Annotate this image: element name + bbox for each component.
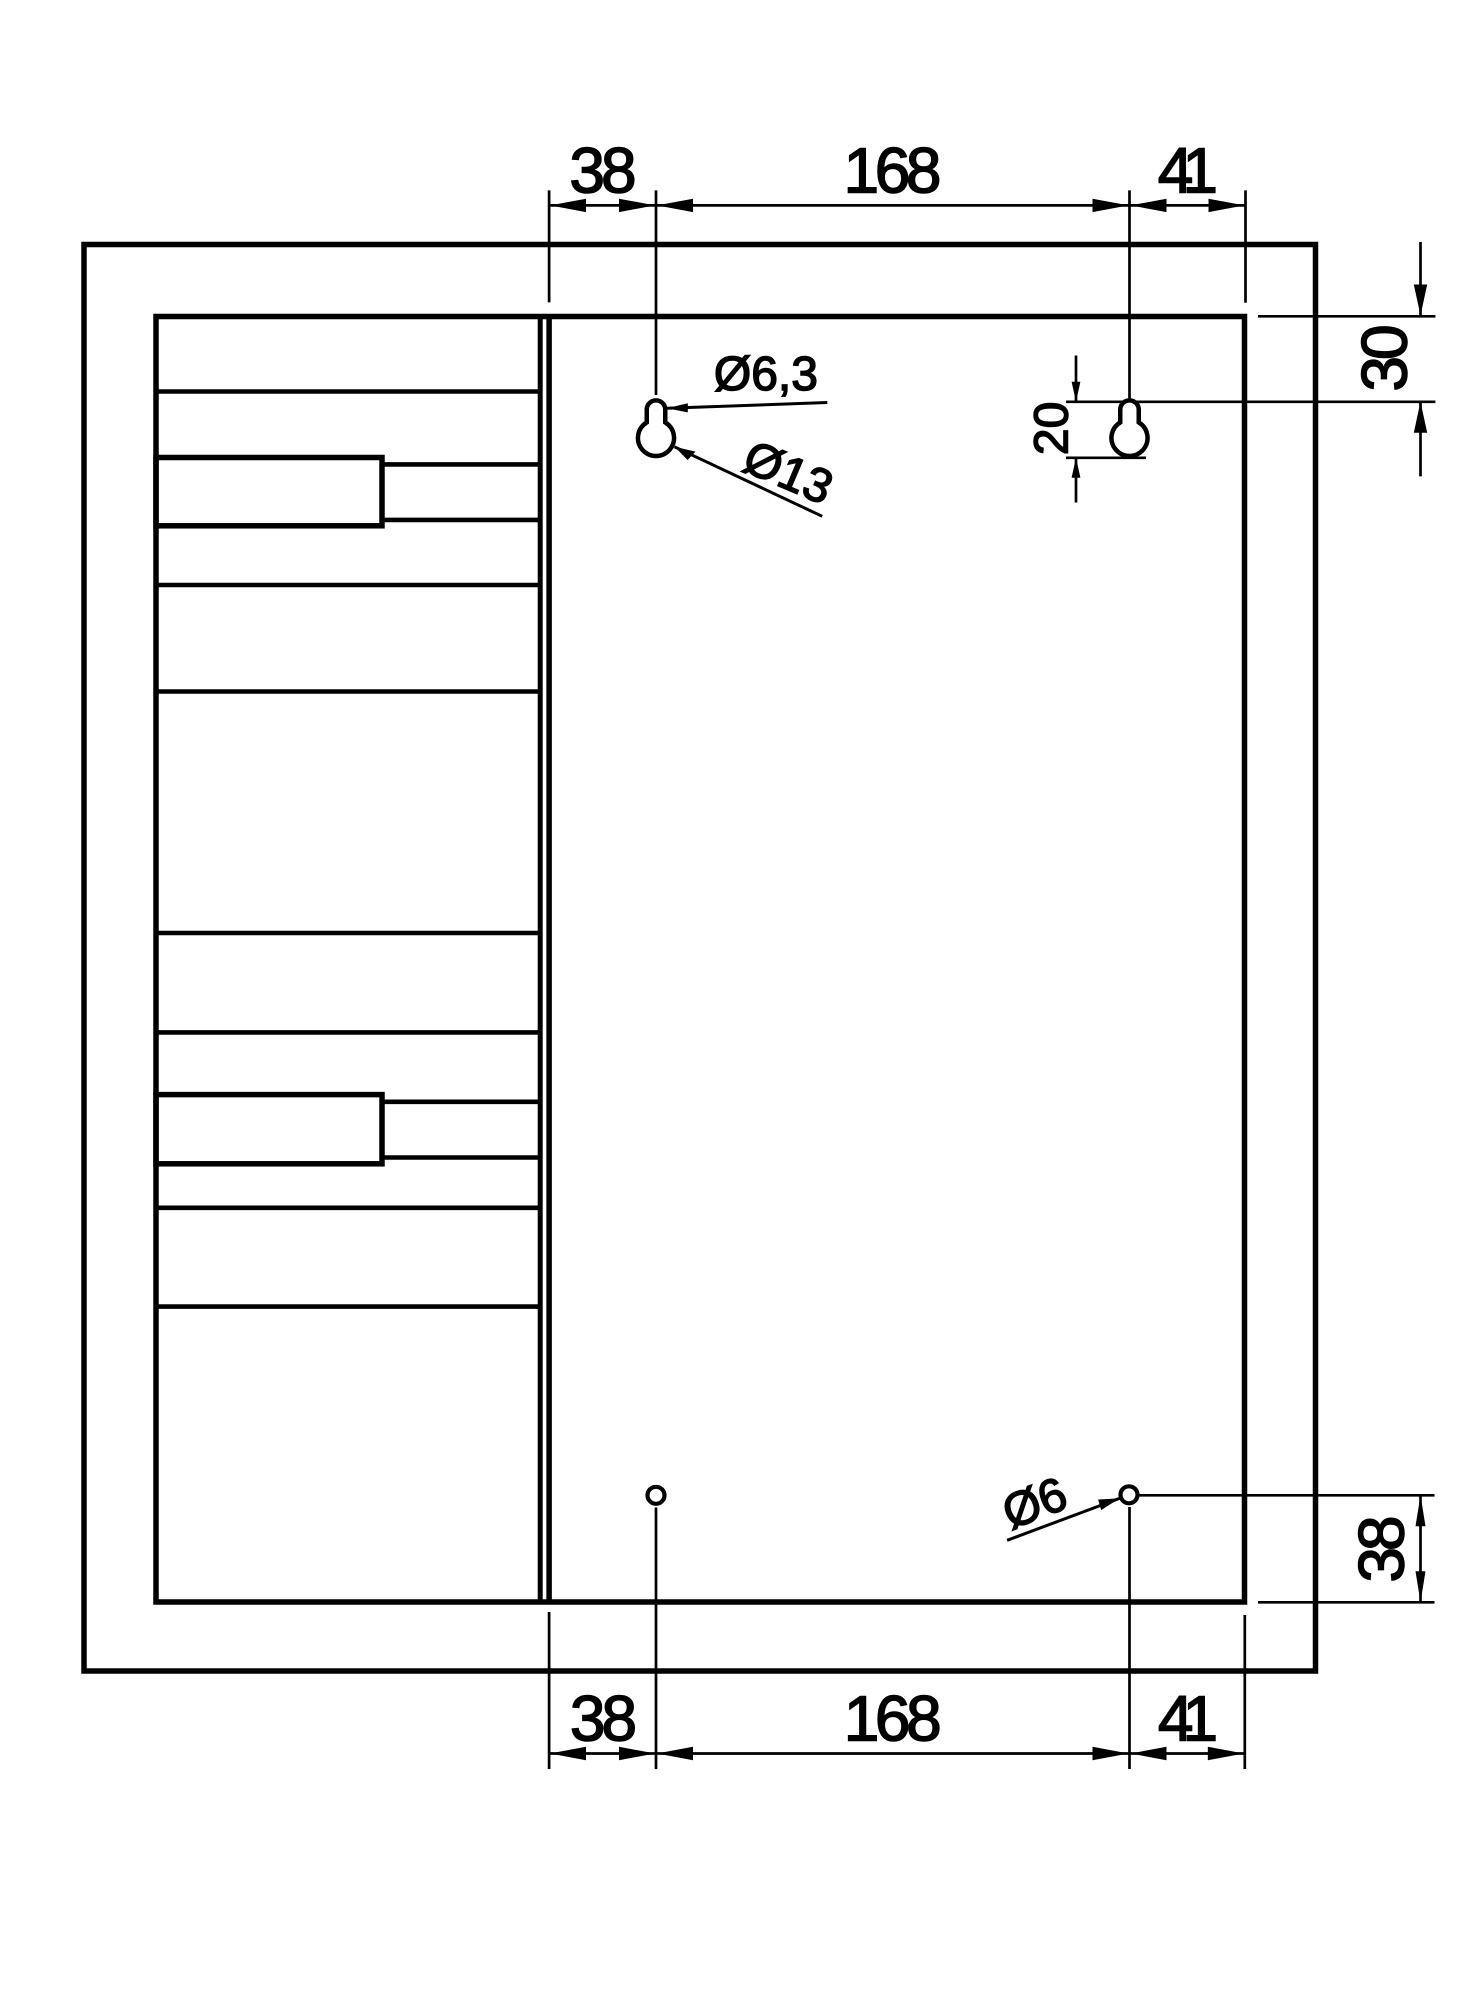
svg-text:20: 20 bbox=[1026, 402, 1079, 455]
svg-text:41: 41 bbox=[1158, 1682, 1216, 1754]
svg-text:38: 38 bbox=[570, 1682, 635, 1754]
svg-text:41: 41 bbox=[1158, 134, 1216, 206]
svg-text:38: 38 bbox=[1346, 1518, 1418, 1583]
svg-text:168: 168 bbox=[844, 1682, 939, 1754]
svg-text:38: 38 bbox=[569, 134, 634, 206]
svg-text:Ø6,3: Ø6,3 bbox=[714, 348, 818, 401]
svg-text:168: 168 bbox=[844, 134, 939, 206]
svg-text:30: 30 bbox=[1349, 326, 1421, 392]
